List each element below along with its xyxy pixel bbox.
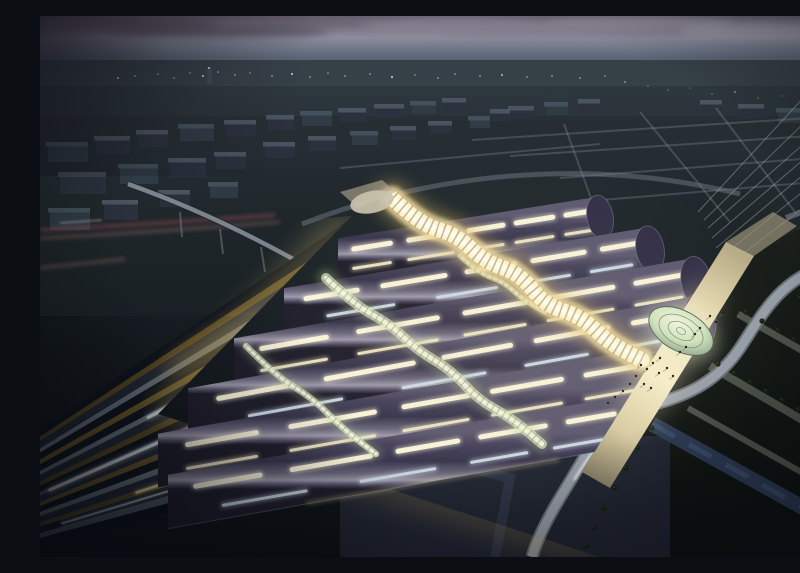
railway-station-night-rendering <box>40 16 800 557</box>
corner-shade-top-left <box>40 16 340 176</box>
warm-center-glow <box>230 156 790 516</box>
vignette <box>40 16 800 557</box>
station-rendering-svg <box>40 16 800 557</box>
